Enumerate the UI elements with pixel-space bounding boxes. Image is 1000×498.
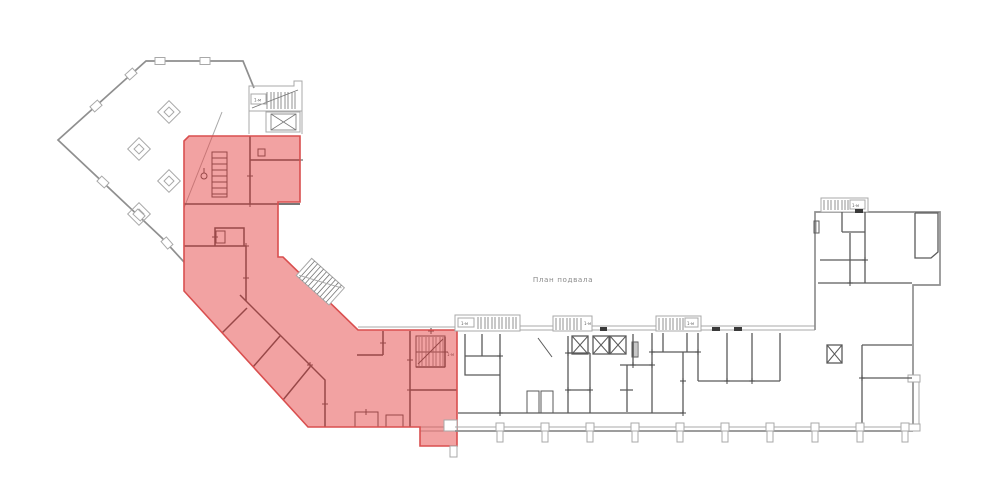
stair-label: 1-м (461, 321, 468, 326)
floor-plan-canvas: 1-м 1-м (0, 0, 1000, 498)
door-threshold (600, 327, 607, 331)
stair-label: 1-м (584, 321, 591, 326)
staircase-icon: 1-м (251, 90, 298, 109)
entry-step (444, 420, 457, 431)
staircase-icon: 1-м (553, 316, 592, 331)
stair-label: 1-м (254, 98, 261, 103)
door-threshold (712, 327, 720, 331)
elevator-shaft-icon (572, 336, 588, 354)
diamond-column-marker-icon (158, 101, 181, 124)
elevator-shaft-icon (593, 336, 609, 354)
elevator-shaft-icon (827, 345, 842, 363)
elevator-shaft-icon (610, 336, 626, 354)
column-marker-icons (128, 101, 181, 226)
plan-caption: План подвала (533, 275, 593, 284)
stair-label: 1-м (852, 203, 859, 208)
door-threshold (855, 209, 863, 213)
staircase-icon: 1-м (455, 315, 520, 331)
staircase-icon: 1-м (656, 316, 701, 331)
elevator-shaft-icon (266, 112, 300, 132)
footing-stub (450, 446, 457, 457)
north-stair-block: 1-м (249, 81, 302, 134)
diamond-column-marker-icon (128, 138, 151, 161)
diamond-column-marker-icon (158, 170, 181, 193)
wing-staircases: 1-м 1-м 1-м 1-м (455, 198, 868, 331)
pilaster-row (496, 423, 909, 442)
stair-label: 1-м (687, 321, 694, 326)
floor-plan-drawing: 1-м 1-м (0, 0, 1000, 498)
door-threshold (734, 327, 742, 331)
